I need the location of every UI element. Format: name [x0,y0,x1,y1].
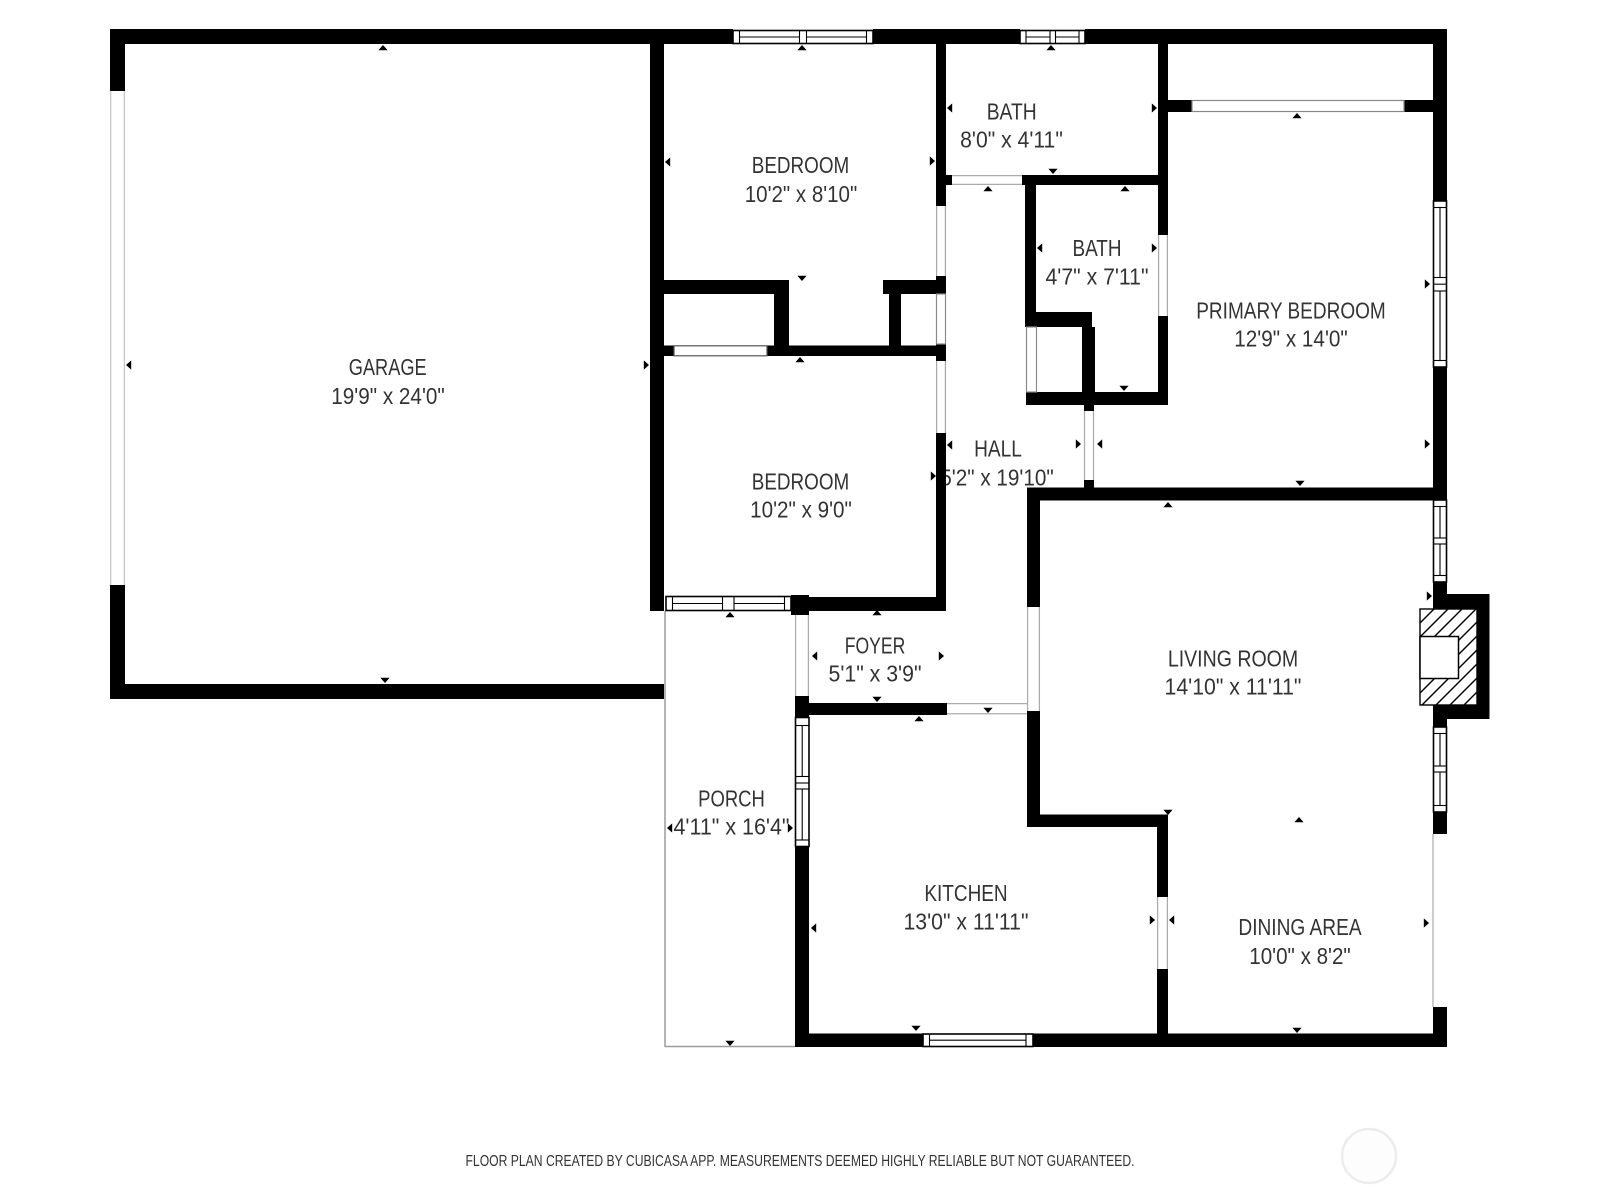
svg-text:10'2" x 8'10": 10'2" x 8'10" [745,181,858,207]
svg-text:GARAGE: GARAGE [349,354,427,380]
svg-text:FLOOR PLAN CREATED BY CUBICASA: FLOOR PLAN CREATED BY CUBICASA APP. MEAS… [466,1153,1135,1170]
svg-text:10'0" x 8'2": 10'0" x 8'2" [1249,943,1351,969]
svg-text:LIVING ROOM: LIVING ROOM [1168,645,1298,671]
svg-text:PORCH: PORCH [698,785,765,811]
svg-text:5'1" x 3'9": 5'1" x 3'9" [829,660,922,686]
svg-text:5'2" x 19'10": 5'2" x 19'10" [940,465,1054,491]
svg-text:8'0" x 4'11": 8'0" x 4'11" [960,127,1063,153]
svg-text:BATH: BATH [987,99,1037,125]
svg-text:HALL: HALL [974,436,1022,462]
svg-text:KITCHEN: KITCHEN [924,880,1007,906]
svg-text:4'11" x 16'4": 4'11" x 16'4" [674,814,790,840]
svg-text:12'9" x 14'0": 12'9" x 14'0" [1234,326,1348,352]
svg-text:DINING AREA: DINING AREA [1238,914,1362,940]
svg-text:13'0" x 11'11": 13'0" x 11'11" [904,909,1029,935]
svg-text:PRIMARY BEDROOM: PRIMARY BEDROOM [1196,298,1386,324]
svg-text:BATH: BATH [1073,235,1122,261]
svg-text:10'2" x 9'0": 10'2" x 9'0" [750,497,852,523]
svg-text:19'9" x 24'0": 19'9" x 24'0" [331,383,445,409]
svg-text:BEDROOM: BEDROOM [752,469,850,495]
svg-text:14'10" x 11'11": 14'10" x 11'11" [1165,674,1302,700]
svg-text:BEDROOM: BEDROOM [752,152,850,178]
svg-text:FOYER: FOYER [845,632,906,658]
svg-text:4'7" x 7'11": 4'7" x 7'11" [1046,264,1149,290]
